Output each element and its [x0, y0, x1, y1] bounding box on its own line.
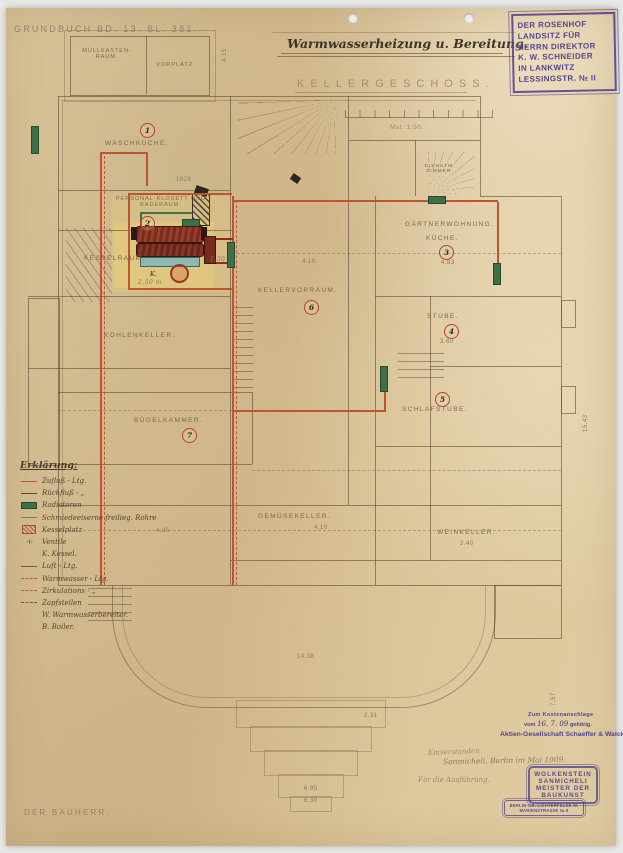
title-underline: [281, 53, 503, 54]
pipe-feed: [497, 202, 499, 266]
floor-title: KELLERGESCHOSS.: [297, 78, 495, 90]
legend-label: Ventile: [42, 538, 67, 546]
stair-treads: [398, 352, 444, 378]
wall-segment: [146, 36, 147, 94]
room-label: KÜCHE.: [426, 235, 459, 242]
title-underline: [277, 56, 515, 57]
spiral-stair: [238, 98, 338, 154]
legend-row: Warmwasser - Ltg.: [20, 573, 160, 585]
wall-segment: [58, 96, 480, 97]
legend-label: Schmiedeeiserne freilieg. Rohre: [42, 514, 157, 522]
pipe-supply: [128, 193, 232, 195]
legend-label: Luft - Ltg.: [42, 562, 78, 570]
pipe-supply: [146, 152, 148, 186]
wall-segment: [28, 296, 230, 297]
company-stamp: Aktien-Gesellschaft Schaeffer & Walcker: [500, 731, 623, 738]
room-number: 7: [182, 428, 197, 443]
room-label: MÜLLKASTEN-RAUM.: [76, 48, 138, 60]
centerline: [58, 410, 232, 411]
terrace-steps: [264, 750, 358, 776]
dimension: 1628.: [176, 177, 194, 183]
pipe-supply: [100, 152, 146, 154]
cost-stamp-date: 16. 7. 09: [537, 720, 568, 728]
address-stamp: BERLIN-GR. LICHTERFELDE W. MARIENSTRASSE…: [504, 800, 584, 816]
cost-stamp-vom: vom: [524, 722, 536, 728]
handwriting-execution: Für die Ausführung.: [418, 776, 490, 784]
stamp-line: LESSINGSTR. № II: [518, 73, 610, 86]
cost-stamp-suffix: gehörig.: [570, 722, 592, 728]
wall-segment: [375, 446, 561, 447]
legend-label: W. Warmwasserbereiter.: [42, 611, 128, 619]
owner-address-stamp: DER ROSENHOF LANDSITZ FÜR HERRN DIREKTOR…: [511, 12, 617, 93]
legend-row: Radiatoren: [20, 499, 160, 511]
room-number: 3: [439, 245, 454, 260]
scanned-plan-page: GRUNDBUCH BD. 13. BL. 381. Warmwasserhei…: [0, 0, 623, 853]
water-tank: [140, 257, 200, 267]
ramp-hatch: [66, 228, 112, 302]
wall-segment: [480, 96, 481, 196]
radiator: [493, 263, 501, 285]
wall-segment: [28, 298, 60, 466]
room-label: KELLERVORRAUM.: [258, 287, 337, 294]
room-dim: 2.40: [460, 541, 474, 547]
floor-underline: [295, 92, 467, 93]
air-line-icon: [20, 566, 38, 567]
legend-row: Kesselplatz: [20, 524, 160, 536]
tap-point-icon: [20, 602, 38, 603]
pipe-riser-return: [236, 200, 237, 585]
wall-segment: [375, 196, 376, 585]
wall-segment: [230, 96, 231, 585]
legend-label: Zirkulations - „: [42, 587, 95, 595]
bay-window: [561, 386, 576, 414]
dimension: 14.38: [297, 654, 315, 660]
dimension: 2.31: [364, 713, 378, 719]
room-label: VORPLATZ.: [148, 62, 204, 68]
supply-line-icon: [20, 481, 38, 482]
boiler-cylinder: [136, 243, 204, 257]
bay-window: [561, 300, 576, 328]
legend-label: Kesselplatz: [42, 526, 82, 534]
room-label: DIENSTM. ZIMMER.: [414, 164, 466, 174]
legend-row: Zapfstellen: [20, 597, 160, 609]
room-number: 1: [140, 123, 155, 138]
sheet-title: Warmwasserheizung u. Bereitung.: [287, 36, 528, 51]
boiler-place-icon: [20, 525, 38, 534]
radiator: [380, 366, 388, 392]
room-label: PERSONAL-KLOSETT UND BADERAUM.: [115, 196, 207, 208]
cost-stamp-line1: Zum Kostenanschlage: [528, 712, 593, 718]
legend-row: ◁▷Ventile: [20, 536, 160, 548]
room-label: GÄRTNERWOHNUNG.: [405, 221, 494, 228]
pipe-feed: [232, 410, 384, 412]
architect-stamp: WOLKENSTEIN SANMICHELI MEISTER DER BAUKU…: [528, 766, 598, 804]
dimension: 15.43: [583, 414, 589, 432]
punch-hole: [464, 13, 474, 23]
wall-segment: [494, 585, 562, 639]
boiler-length: 2,50 m: [138, 279, 162, 286]
dimension: 4.15: [222, 48, 228, 62]
legend-label: K. Kessel.: [42, 550, 77, 558]
radiator: [428, 196, 446, 204]
room-dim: 4.83: [441, 260, 455, 266]
legend-label: Radiatoren: [42, 501, 82, 509]
legend-label: Zufluß - Ltg.: [42, 477, 86, 485]
boiler-diameter: 1,30: [210, 256, 225, 263]
wall-segment: [230, 560, 561, 561]
legend-label: Zapfstellen: [42, 599, 82, 607]
legend-title: Erklärung:: [20, 460, 160, 471]
room-label: GEMÜSEKELLER.: [258, 513, 331, 520]
room-label: BÜGELKAMMER.: [134, 417, 203, 424]
bauherr-label: DER BAUHERR.: [24, 808, 111, 817]
dimension: 6.30: [304, 798, 318, 804]
rule-line: [272, 32, 516, 33]
scale-note: Mst. 1:50.: [390, 124, 424, 131]
stamp-line: MEISTER DER: [534, 785, 592, 792]
legend-row: B. Boiler.: [20, 621, 160, 633]
radiator: [227, 242, 235, 268]
hot-water-line-icon: [20, 578, 38, 579]
stamp-line: SANMICHELI: [534, 778, 592, 785]
dimension: 7.57: [551, 692, 557, 706]
dimension: 6.95: [304, 786, 318, 792]
legend-label: B. Boiler.: [42, 623, 74, 631]
boiler-cap: [131, 227, 137, 240]
return-line-icon: [20, 493, 38, 494]
pump: [170, 264, 189, 283]
room-number: 2: [140, 216, 155, 231]
legend-row: Zirkulations - „: [20, 585, 160, 597]
wall-segment: [430, 296, 431, 560]
room-label: STUBE.: [427, 313, 459, 320]
legend-row: Schmiedeeiserne freilieg. Rohre: [20, 512, 160, 524]
cost-stamp-line2: vom 16. 7. 09 gehörig.: [524, 720, 592, 728]
boiler-label: K.: [150, 270, 157, 278]
room-label: KESSELRAUM.: [84, 255, 146, 262]
pipe-feed: [232, 200, 498, 202]
stamp-line: MARIENSTRASSE № 9: [508, 808, 580, 813]
centerline: [232, 253, 561, 254]
wall-segment: [348, 140, 480, 141]
legend: Erklärung: Zufluß - Ltg. Rückfluß - „ Ra…: [20, 460, 160, 633]
wall-segment: [430, 366, 561, 367]
wall-segment: [58, 392, 252, 393]
punch-hole: [348, 13, 358, 23]
wall-segment: [375, 296, 561, 297]
legend-label: Warmwasser - Ltg.: [42, 575, 109, 583]
stamp-line: BAUKUNST: [534, 792, 592, 799]
wall-segment: [480, 196, 561, 197]
room-number: 6: [304, 300, 319, 315]
radiator: [31, 126, 39, 154]
pipe-green: [140, 212, 192, 214]
legend-label: Rückfluß - „: [42, 489, 84, 497]
pipe-supply: [128, 288, 232, 290]
wall-segment: [252, 392, 253, 464]
room-dim: 4.10: [314, 525, 328, 531]
legend-row: Luft - Ltg.: [20, 560, 160, 572]
room-label: KOHLENKELLER.: [104, 332, 176, 339]
centerline: [252, 470, 561, 471]
legend-row: W. Warmwasserbereiter.: [20, 609, 160, 621]
room-number: 5: [435, 392, 450, 407]
legend-row: K. Kessel.: [20, 548, 160, 560]
radiator-icon: [20, 502, 38, 509]
valve-icon: ◁▷: [20, 539, 38, 545]
circulation-line-icon: [20, 590, 38, 591]
room-label: WASCHKÜCHE.: [105, 140, 169, 147]
terrace-outline: [122, 585, 486, 698]
iron-pipe-icon: [20, 517, 38, 518]
room-label: WEINKELLER.: [437, 529, 496, 536]
terrace-steps: [250, 726, 372, 752]
room-number: 4: [444, 324, 459, 339]
legend-row: Zufluß - Ltg.: [20, 475, 160, 487]
room-label: SCHLAFSTUBE.: [402, 406, 468, 413]
room-dim: 4.10: [302, 259, 316, 265]
stamp-line: WOLKENSTEIN: [534, 771, 592, 778]
wall-segment: [348, 96, 349, 505]
legend-row: Rückfluß - „: [20, 487, 160, 499]
room-dim: 3.60: [440, 339, 454, 345]
scale-bar: [345, 110, 493, 118]
